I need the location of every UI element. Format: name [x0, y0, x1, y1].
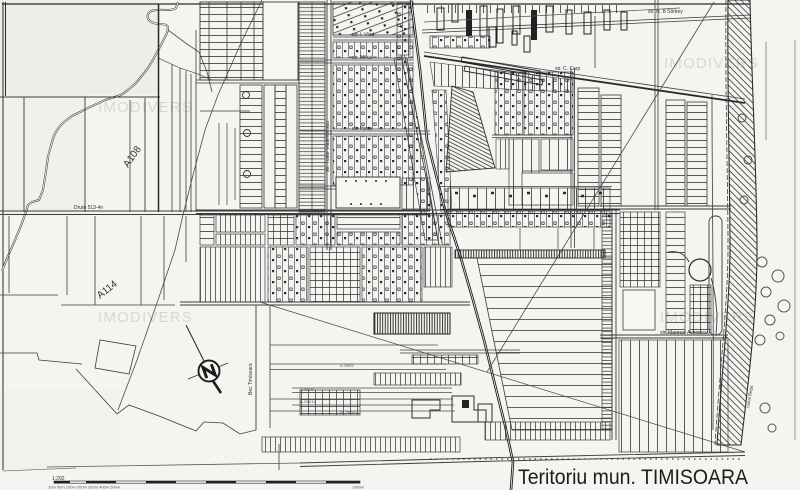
- svg-text:str. C. Carp: str. C. Carp: [555, 66, 581, 72]
- svg-text:str. Mihai: str. Mihai: [352, 55, 372, 61]
- svg-text:str. Maresal Averescu: str. Maresal Averescu: [660, 330, 708, 336]
- svg-text:A 290/11: A 290/11: [300, 399, 316, 404]
- svg-text:Drum 513-4n: Drum 513-4n: [74, 205, 103, 211]
- svg-text:str. I. Vlad: str. I. Vlad: [352, 32, 374, 38]
- svg-text:10m 50m 100m 200m: 10m 50m 100m 200m 300m 400m 500m: [48, 485, 121, 490]
- svg-text:Bec Timisoara: Bec Timisoara: [248, 363, 254, 395]
- svg-text:IMODIVERS: IMODIVERS: [98, 99, 193, 116]
- svg-text:str. N. B Stirbey: str. N. B Stirbey: [648, 9, 683, 15]
- svg-text:A 290/5: A 290/5: [340, 363, 354, 368]
- svg-text:IMODIVERS: IMODIVERS: [98, 309, 193, 326]
- svg-text:str. Tudor Vladimirescu: str. Tudor Vladimirescu: [325, 121, 331, 172]
- svg-text:str. Horia: str. Horia: [352, 126, 372, 132]
- svg-text:A 290/9: A 290/9: [300, 387, 314, 392]
- svg-text:Teritoriu mun. TIMISOARA: Teritoriu mun. TIMISOARA: [518, 466, 748, 489]
- svg-text:1000m: 1000m: [352, 485, 365, 490]
- svg-text:Ps 290/14: Ps 290/14: [340, 410, 359, 415]
